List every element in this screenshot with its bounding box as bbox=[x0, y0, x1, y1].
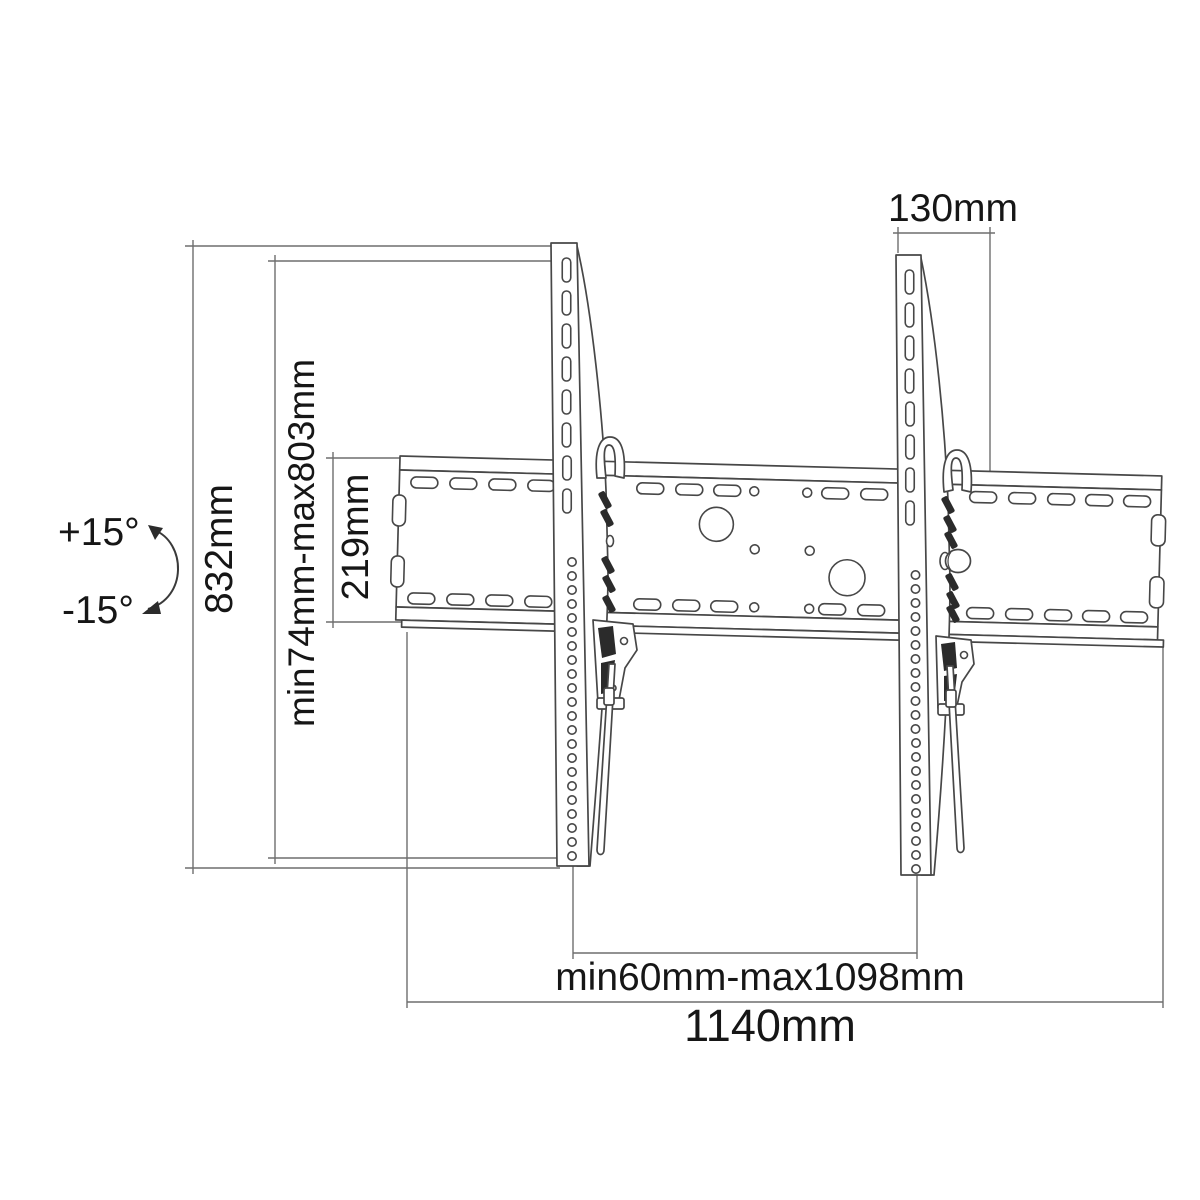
dimension-diagram: 130mm 832mm min74mm-max803mm 219mm +15° … bbox=[0, 0, 1200, 1200]
wall-plate bbox=[390, 456, 1168, 647]
tilt-arrow bbox=[142, 525, 178, 614]
dim-total-width bbox=[407, 632, 1163, 1008]
label-height-range: min74mm-max803mm bbox=[281, 359, 322, 727]
right-bracket-tilt-rod bbox=[946, 666, 964, 853]
label-total-height: 832mm bbox=[198, 484, 241, 614]
wall-mount-drawing: 130mm 832mm min74mm-max803mm 219mm +15° … bbox=[0, 0, 1200, 1200]
tilt-arrow-down-head bbox=[142, 601, 161, 614]
right-bracket bbox=[896, 255, 974, 875]
dim-span-range bbox=[573, 866, 917, 959]
label-tilt-up: +15° bbox=[58, 511, 140, 554]
right-bracket-tilt-knob bbox=[940, 550, 971, 573]
label-tilt-down: -15° bbox=[62, 589, 134, 632]
label-plate-height: 219mm bbox=[335, 474, 377, 601]
label-bracket-width: 130mm bbox=[888, 187, 1018, 230]
label-total-width: 1140mm bbox=[684, 1000, 856, 1051]
label-span-range: min60mm-max1098mm bbox=[555, 956, 965, 999]
